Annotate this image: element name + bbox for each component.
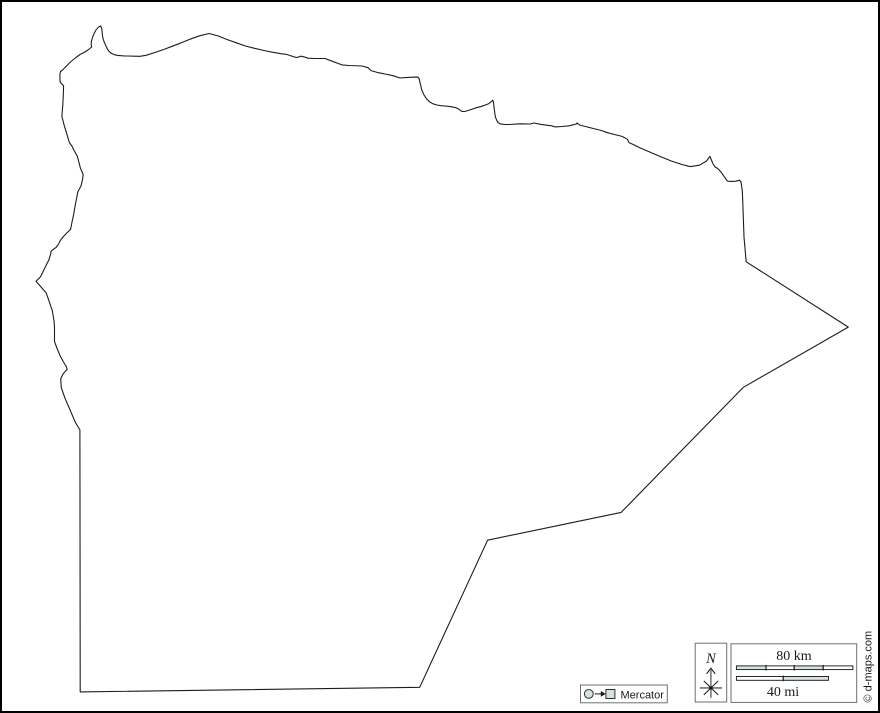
svg-text:N: N <box>705 651 717 667</box>
svg-text:Mercator: Mercator <box>621 689 665 701</box>
svg-text:80 km: 80 km <box>776 649 812 664</box>
svg-text:© d-maps.com: © d-maps.com <box>863 631 875 703</box>
svg-text:40 mi: 40 mi <box>767 685 799 700</box>
